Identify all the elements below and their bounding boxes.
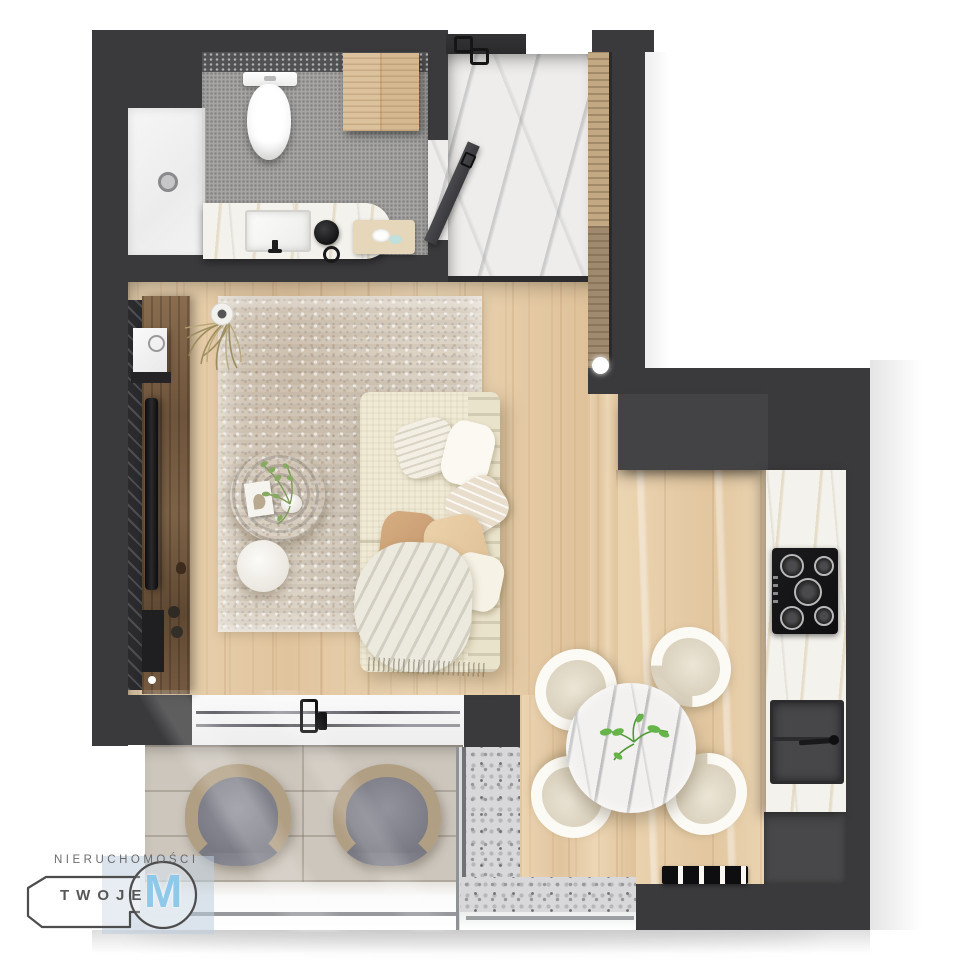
toilet-buttons (264, 76, 276, 81)
wall-device (133, 328, 167, 374)
floor-plan-render: NIERUCHOMOŚCI TWOJE M (0, 0, 960, 960)
bathroom-cabinet (343, 53, 419, 131)
balcony-armchair-right (333, 764, 441, 866)
kitchen-sink (770, 700, 844, 784)
living-floor-patch (588, 394, 618, 695)
wall-top-right (592, 30, 654, 52)
radiator (662, 866, 748, 884)
wall-device-base (131, 372, 171, 383)
console-decor-knob-1 (168, 606, 180, 618)
wall-left (92, 30, 128, 746)
shower-drain (158, 172, 178, 192)
wall-kitchen-corner (768, 394, 846, 470)
wall-bathroom-bottom (128, 255, 448, 282)
wall-device-ring (148, 335, 165, 352)
balcony-door-rail-2 (196, 724, 460, 727)
balcony-wall-stub-right (464, 695, 520, 747)
terrace-rail (466, 916, 634, 920)
wardrobe-spotlight (592, 357, 609, 374)
logo-brand-word: TWOJE (60, 887, 148, 904)
terrace-balustrade (460, 912, 636, 930)
entrance-door-handle-inside (470, 48, 489, 65)
grass-plant (185, 298, 277, 380)
shadow-hall-right (645, 52, 685, 368)
console-decor-knob-2 (171, 626, 183, 638)
vanity-sink (245, 210, 311, 252)
counter-end-cabinet (764, 812, 846, 884)
sink-faucet-knob (829, 735, 839, 745)
burner-center (794, 578, 822, 606)
logo-monogram: M (144, 864, 182, 918)
wall-right-main (846, 394, 870, 930)
burner-tr (814, 556, 834, 576)
balcony-door-handle-outer (300, 699, 318, 733)
sofa (360, 392, 500, 672)
wall-kitchen-inner-block (618, 394, 768, 470)
wall-bottom-right (636, 884, 870, 930)
tray-dish-white (372, 229, 390, 242)
balcony-door-sill (192, 695, 464, 745)
cooktop-knobs (773, 576, 778, 608)
toilet-bowl (247, 84, 291, 160)
sofa-throw-blanket (352, 540, 474, 674)
console-shelf-black (142, 610, 164, 672)
shadow-right (870, 360, 950, 930)
side-table (237, 540, 289, 592)
burner-tl (780, 554, 804, 578)
wall-top (92, 30, 448, 52)
vanity-faucet-base (268, 249, 282, 253)
tv (145, 398, 158, 590)
burner-bl (780, 606, 804, 630)
tray-dish-teal (389, 235, 402, 244)
logo: NIERUCHOMOŚCI TWOJE M (12, 848, 232, 944)
console-decor-bird (176, 562, 186, 574)
wall-above-shower (128, 52, 202, 108)
console-decor-dot (148, 676, 156, 684)
balcony-door-rail-1 (196, 711, 460, 714)
wardrobe-edge (609, 52, 612, 368)
balcony-wall-stub-left (128, 695, 192, 745)
wall-bathroom-hall-upper (428, 52, 448, 140)
vanity-soap-dish (323, 246, 340, 263)
coffee-table-plant (248, 452, 320, 526)
balcony-door-handle-inner (318, 712, 327, 730)
vanity-bowl (314, 220, 339, 245)
dining-table-plant (596, 712, 672, 764)
gas-cooktop (772, 548, 838, 634)
burner-br (814, 606, 834, 626)
wall-hall-right (612, 52, 645, 372)
wall-kitchen-top (588, 368, 870, 394)
